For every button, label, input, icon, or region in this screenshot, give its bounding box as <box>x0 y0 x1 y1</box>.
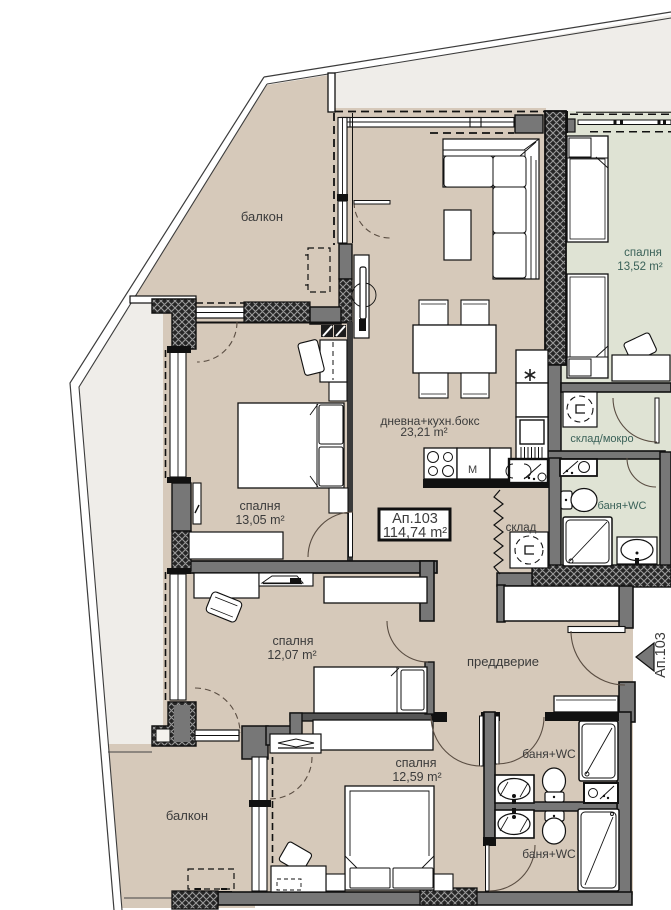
svg-text:12,07 m²: 12,07 m² <box>267 648 316 662</box>
svg-text:спалня: спалня <box>273 634 314 648</box>
svg-text:114,74 m²: 114,74 m² <box>383 525 447 541</box>
svg-text:баня+WC: баня+WC <box>522 747 576 761</box>
svg-text:13,52 m²: 13,52 m² <box>617 261 663 273</box>
svg-text:преддверие: преддверие <box>467 654 539 669</box>
svg-text:баня+WC: баня+WC <box>598 500 647 512</box>
svg-text:спалня: спалня <box>240 499 281 513</box>
svg-text:склад/мокро: склад/мокро <box>570 433 633 445</box>
svg-text:спалня: спалня <box>396 756 437 770</box>
svg-text:13,05 m²: 13,05 m² <box>235 513 284 527</box>
svg-text:23,21 m²: 23,21 m² <box>400 425 447 439</box>
svg-text:спалня: спалня <box>624 247 662 259</box>
svg-text:Ап.103: Ап.103 <box>653 632 669 678</box>
svg-text:склад: склад <box>506 522 537 534</box>
svg-text:балкон: балкон <box>166 808 208 823</box>
svg-text:12,59 m²: 12,59 m² <box>392 770 441 784</box>
svg-text:балкон: балкон <box>241 209 283 224</box>
svg-text:M: M <box>468 464 477 476</box>
svg-text:баня+WC: баня+WC <box>522 847 576 861</box>
